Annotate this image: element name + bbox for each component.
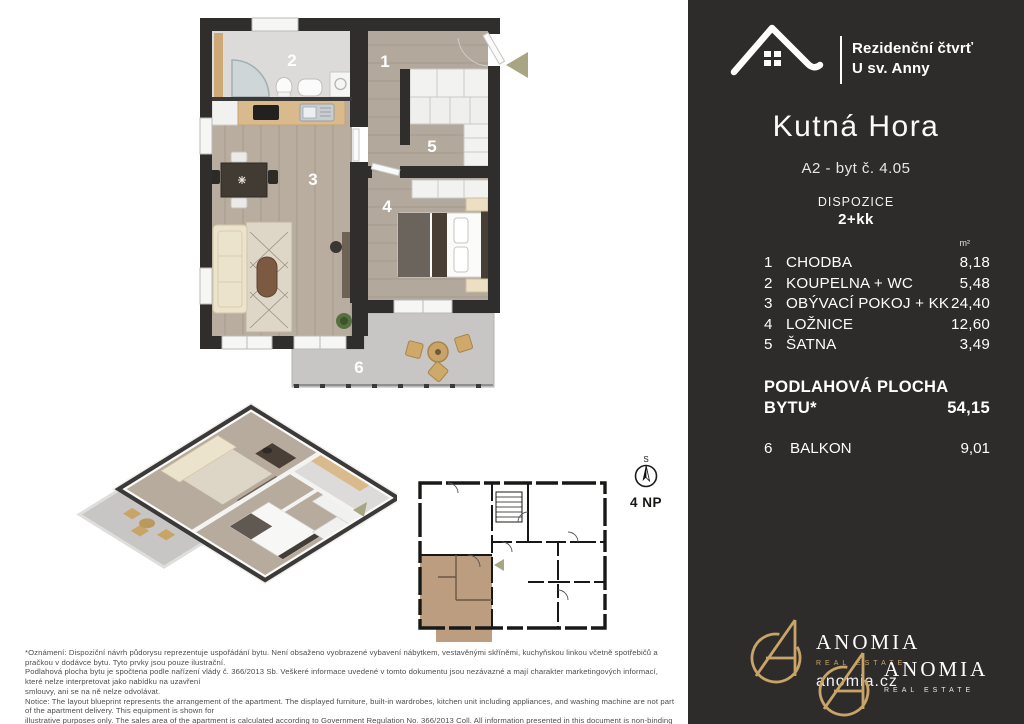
area-unit-header: m²: [960, 238, 971, 248]
room-num: 3: [764, 295, 786, 312]
room-num: 2: [764, 275, 786, 292]
anomia-name: ANOMIA: [884, 657, 1024, 682]
room-name: CHODBA: [786, 254, 960, 271]
sink: [298, 79, 322, 96]
compass: S 4 NP: [620, 455, 672, 510]
room-area: 12,60: [951, 316, 990, 333]
room-area: 3,49: [960, 336, 990, 353]
desk-chair: [330, 241, 342, 253]
room-name: OBÝVACÍ POKOJ + KK: [786, 295, 951, 312]
room-area: 24,40: [951, 295, 990, 312]
kitchen-counter: [212, 100, 345, 125]
pillow: [454, 218, 468, 243]
total-label-line1: PODLAHOVÁ PLOCHA: [764, 377, 990, 398]
floorplan-top-view: 1 2 3 4 5 6: [195, 10, 535, 398]
house-roof-icon: [728, 20, 824, 84]
building-blueprint: [408, 472, 638, 657]
layout-label: DISPOZICE: [688, 195, 1024, 209]
room-num: 5: [764, 336, 786, 353]
table-row: 4 LOŽNICE 12,60: [764, 316, 990, 337]
anomia-tagline: REAL ESTATE: [884, 687, 1024, 694]
total-area-block: PODLAHOVÁ PLOCHA BYTU* 54,15: [764, 377, 990, 419]
room-area: 8,18: [960, 254, 990, 271]
total-label-line2: BYTU*: [764, 398, 817, 419]
blueprint-entrance-arrow-icon: [494, 559, 504, 571]
stairs: [496, 492, 522, 522]
washer: [330, 72, 351, 97]
living-door: [353, 129, 359, 161]
room-name: ŠATNA: [786, 336, 960, 353]
room-label-bath: 2: [287, 51, 296, 70]
table-row: 2 KOUPELNA + WC 5,48: [764, 275, 990, 296]
balcony-row: 6 BALKON 9,01: [764, 440, 990, 457]
room-name: KOUPELNA + WC: [786, 275, 960, 292]
compass-icon: S: [624, 455, 668, 491]
bathroom-door-panel: [214, 33, 223, 97]
project-name-line1: Rezidenční čtvrť: [852, 39, 973, 59]
project-name: Rezidenční čtvrť U sv. Anny: [852, 39, 973, 79]
project-name-line2: U sv. Anny: [852, 59, 973, 79]
floorplan-iso-view: [75, 386, 397, 656]
table-row: 5 ŠATNA 3,49: [764, 336, 990, 357]
room-num: 1: [764, 254, 786, 271]
disclaimer-en-line1: Notice: The layout blueprint represents …: [25, 697, 675, 716]
city-title: Kutná Hora: [688, 110, 1024, 144]
room-name: LOŽNICE: [786, 316, 951, 333]
room-label-living: 3: [308, 170, 317, 189]
compass-north-label: S: [643, 455, 648, 464]
disclaimer-cz-line1: *Oznámení: Dispoziční návrh půdorysu rep…: [25, 648, 675, 667]
cooktop: [253, 105, 279, 120]
brochure-page: 1 2 3 4 5 6: [0, 0, 1024, 724]
headboard: [481, 209, 488, 281]
room-table: 1 CHODBA 8,18 2 KOUPELNA + WC 5,48 3 OBÝ…: [764, 254, 990, 357]
entrance-arrow-icon: [506, 52, 528, 78]
bed-runner: [432, 213, 447, 277]
balcony-num: 6: [764, 440, 790, 457]
room-num: 4: [764, 316, 786, 333]
room-label-hall: 1: [380, 52, 389, 71]
anomia-monogram-icon: [818, 645, 876, 724]
disclaimer-cz-line2: Podlahová plocha bytu je spočtena podle …: [25, 667, 675, 686]
chair: [268, 170, 278, 184]
brand-divider: [840, 36, 842, 84]
coffee-table: [257, 257, 277, 297]
house-window: [764, 51, 781, 66]
total-area-value: 54,15: [947, 398, 990, 419]
room-area: 5,48: [960, 275, 990, 292]
nightstand: [466, 279, 488, 292]
floor-number-label: 4 NP: [620, 495, 672, 510]
balcony-area-value: 9,01: [960, 440, 990, 457]
chair: [231, 198, 247, 208]
unit-subtitle: A2 - byt č. 4.05: [688, 160, 1024, 177]
layout-value: 2+kk: [688, 211, 1024, 228]
balcony-name: BALKON: [790, 440, 960, 457]
disclaimer: *Oznámení: Dispoziční návrh půdorysu rep…: [25, 648, 675, 724]
room-label-balcony: 6: [354, 358, 363, 377]
disclaimer-cz-line3: smlouvy, ani se na ně nelze odvolávat.: [25, 687, 675, 697]
pillow: [454, 247, 468, 272]
chair: [231, 152, 247, 162]
balcony-chair: [405, 340, 423, 358]
table-row: 3 OBÝVACÍ POKOJ + KK 24,40: [764, 295, 990, 316]
room-label-closet: 5: [427, 137, 436, 156]
bed-blanket: [398, 213, 430, 277]
sideboard: [342, 232, 351, 298]
anomia-monogram-icon: [750, 612, 808, 692]
nightstand: [466, 198, 488, 211]
table-row: 1 CHODBA 8,18: [764, 254, 990, 275]
info-panel: Rezidenční čtvrť U sv. Anny Kutná Hora A…: [688, 0, 1024, 724]
disclaimer-en-line2: illustrative purposes only. The sales ar…: [25, 716, 675, 724]
room-label-bedroom: 4: [382, 197, 392, 216]
